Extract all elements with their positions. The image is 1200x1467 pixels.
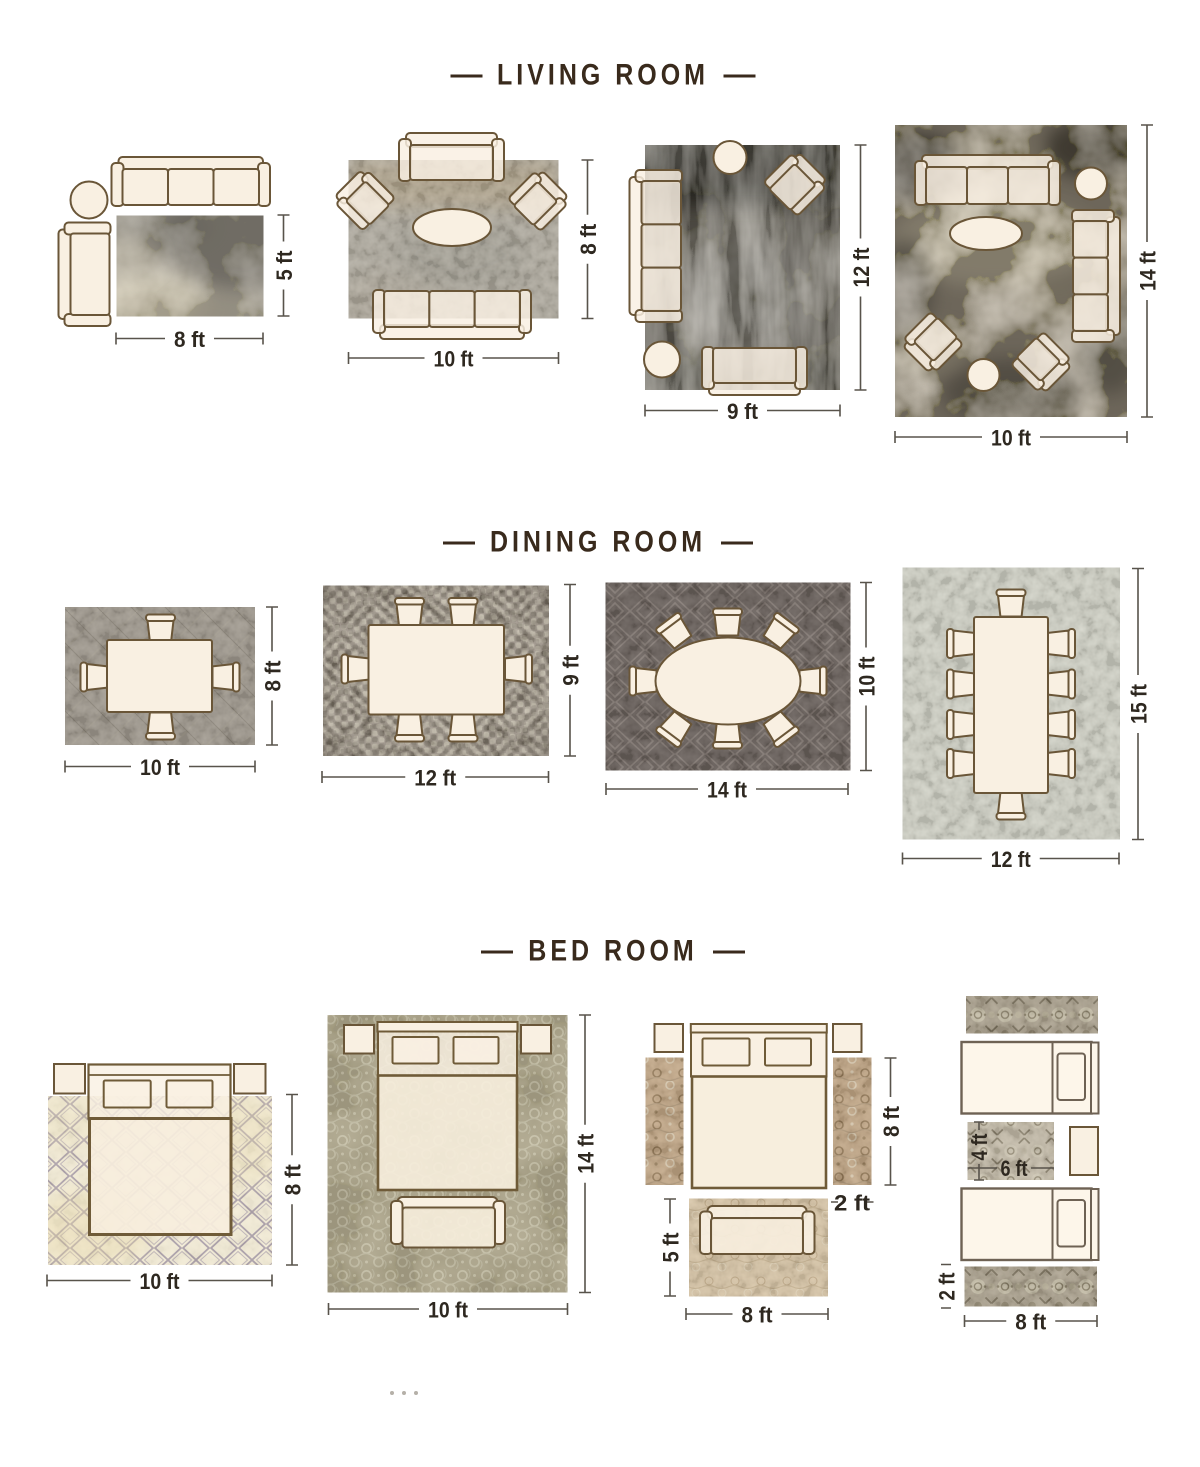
svg-text:8 ft: 8 ft <box>261 660 286 692</box>
svg-text:14 ft: 14 ft <box>707 778 748 803</box>
svg-text:5 ft: 5 ft <box>659 1232 684 1263</box>
svg-text:8 ft: 8 ft <box>1015 1310 1047 1335</box>
svg-text:12 ft: 12 ft <box>991 847 1032 872</box>
svg-text:BED ROOM: BED ROOM <box>528 934 697 967</box>
svg-text:2 ft: 2 ft <box>935 1272 960 1301</box>
svg-text:10 ft: 10 ft <box>428 1298 469 1323</box>
svg-text:5 ft: 5 ft <box>272 250 297 281</box>
svg-text:8 ft: 8 ft <box>742 1303 774 1328</box>
svg-text:10 ft: 10 ft <box>140 1269 181 1294</box>
svg-text:14 ft: 14 ft <box>574 1133 599 1174</box>
svg-text:15 ft: 15 ft <box>1127 683 1152 724</box>
svg-text:8 ft: 8 ft <box>576 223 601 255</box>
svg-text:12 ft: 12 ft <box>414 766 457 791</box>
svg-text:10 ft: 10 ft <box>855 656 880 697</box>
svg-text:12 ft: 12 ft <box>849 247 874 288</box>
svg-text:9 ft: 9 ft <box>559 654 584 686</box>
svg-text:8 ft: 8 ft <box>281 1164 306 1196</box>
svg-text:9 ft: 9 ft <box>727 399 759 424</box>
svg-text:10 ft: 10 ft <box>434 347 475 372</box>
svg-text:14 ft: 14 ft <box>1136 250 1161 291</box>
svg-text:6 ft: 6 ft <box>1001 1156 1029 1181</box>
svg-text:LIVING ROOM: LIVING ROOM <box>497 58 709 91</box>
svg-text:10 ft: 10 ft <box>140 755 181 780</box>
svg-text:4 ft: 4 ft <box>967 1133 992 1161</box>
svg-text:DINING ROOM: DINING ROOM <box>490 525 706 558</box>
svg-text:8 ft: 8 ft <box>879 1105 904 1137</box>
svg-text:10 ft: 10 ft <box>991 426 1032 451</box>
svg-text:8 ft: 8 ft <box>174 327 206 352</box>
svg-text:2 ft: 2 ft <box>834 1191 871 1216</box>
